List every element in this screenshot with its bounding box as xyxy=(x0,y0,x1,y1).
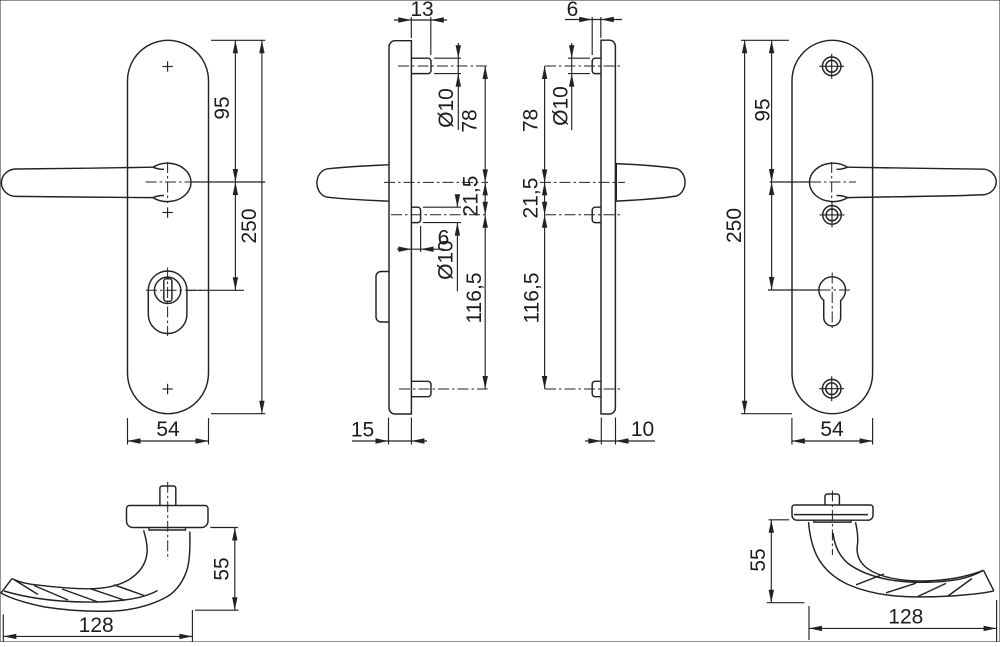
svg-text:21,5: 21,5 xyxy=(459,176,482,217)
svg-text:95: 95 xyxy=(211,96,234,119)
svg-text:95: 95 xyxy=(751,98,774,121)
svg-text:6: 6 xyxy=(438,226,450,249)
svg-text:Ø10: Ø10 xyxy=(549,86,572,126)
svg-text:6: 6 xyxy=(567,0,579,21)
svg-text:21,5: 21,5 xyxy=(519,178,542,219)
svg-text:55: 55 xyxy=(210,557,233,580)
svg-text:78: 78 xyxy=(519,109,542,132)
svg-text:54: 54 xyxy=(820,418,844,441)
svg-text:Ø10: Ø10 xyxy=(435,88,458,128)
svg-text:13: 13 xyxy=(410,0,433,21)
svg-text:250: 250 xyxy=(238,208,261,243)
svg-text:128: 128 xyxy=(79,614,114,637)
svg-text:250: 250 xyxy=(723,208,746,243)
svg-text:15: 15 xyxy=(351,418,374,441)
svg-text:116,5: 116,5 xyxy=(520,273,543,324)
svg-text:55: 55 xyxy=(747,548,770,571)
svg-text:78: 78 xyxy=(458,109,481,132)
svg-text:10: 10 xyxy=(631,418,654,441)
svg-text:128: 128 xyxy=(888,605,923,628)
svg-text:116,5: 116,5 xyxy=(463,273,486,324)
svg-text:54: 54 xyxy=(156,418,180,441)
